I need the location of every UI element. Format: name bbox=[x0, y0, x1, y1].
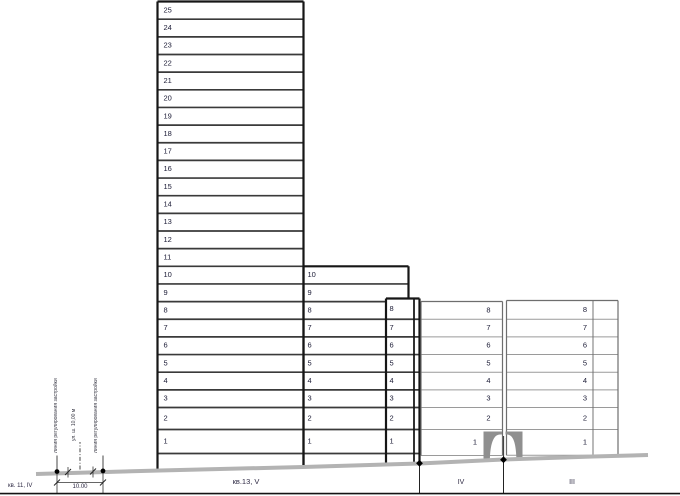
floor-label: 1 bbox=[164, 436, 168, 445]
floor-label: 3 bbox=[390, 394, 394, 403]
floor-label: 6 bbox=[390, 341, 394, 350]
block-label-kv11: кв. 11, IV bbox=[8, 483, 32, 489]
floor-label: 8 bbox=[390, 304, 394, 313]
floor-label: 2 bbox=[308, 413, 312, 422]
floor-label: 7 bbox=[308, 323, 312, 332]
floor-label: 18 bbox=[164, 129, 172, 138]
floor-label: 17 bbox=[164, 147, 172, 156]
floor-label: 4 bbox=[583, 376, 587, 385]
floor-label: 20 bbox=[164, 94, 172, 103]
floor-label: 15 bbox=[164, 182, 172, 191]
floor-label: 22 bbox=[164, 58, 172, 67]
drawing-canvas: 1234567891012345678910111213141516171819… bbox=[0, 0, 680, 496]
floor-label: 1 bbox=[308, 436, 312, 445]
floor-label: 25 bbox=[164, 5, 172, 14]
floor-label: 4 bbox=[486, 376, 490, 385]
floor-label: 21 bbox=[164, 76, 172, 85]
floor-label: 10 bbox=[308, 270, 316, 279]
floor-label: 3 bbox=[583, 394, 587, 403]
floor-label: 5 bbox=[486, 358, 490, 367]
building-building-8-storey-narrow: 12345678 bbox=[386, 299, 420, 466]
floor-label: 1 bbox=[473, 437, 477, 446]
floor-label: 1 bbox=[390, 436, 394, 445]
floor-label: 5 bbox=[308, 358, 312, 367]
dimension-value: 10.00 bbox=[60, 484, 100, 490]
floor-label: 7 bbox=[486, 323, 490, 332]
building-tower-25-storey: 1234567891011121314151617181920212223242… bbox=[158, 2, 304, 471]
floor-label: 19 bbox=[164, 111, 172, 120]
floor-label: 10 bbox=[164, 270, 172, 279]
floor-label: 1 bbox=[583, 437, 587, 446]
regulation-line-label-left: линия регулирования застройки bbox=[54, 378, 59, 453]
floor-label: 4 bbox=[308, 376, 312, 385]
floor-label: 11 bbox=[164, 252, 172, 261]
floor-label: 6 bbox=[164, 341, 168, 350]
floor-label: 24 bbox=[164, 23, 172, 32]
floor-label: 8 bbox=[164, 305, 168, 314]
elevation-drawing: 1234567891012345678910111213141516171819… bbox=[0, 0, 680, 496]
ground-line bbox=[36, 455, 648, 474]
floor-label: 5 bbox=[390, 358, 394, 367]
floor-label: 6 bbox=[308, 341, 312, 350]
floor-label: 6 bbox=[486, 341, 490, 350]
zone-label-iii: III bbox=[552, 479, 592, 486]
street-axis-label: ул. ш. 10,00 м bbox=[72, 409, 77, 441]
block-label-kv13: кв.13, V bbox=[215, 478, 277, 486]
floor-label: 5 bbox=[164, 358, 168, 367]
floor-label: 4 bbox=[390, 376, 394, 385]
floor-label: 16 bbox=[164, 164, 172, 173]
floor-label: 4 bbox=[164, 376, 168, 385]
floor-label: 2 bbox=[164, 413, 168, 422]
floor-label: 3 bbox=[308, 394, 312, 403]
floor-label: 3 bbox=[164, 394, 168, 403]
regulation-line-label-right: линия регулирования застройки bbox=[94, 378, 99, 453]
floor-label: 7 bbox=[164, 323, 168, 332]
floor-label: 3 bbox=[486, 394, 490, 403]
floor-label: 14 bbox=[164, 200, 172, 209]
floor-label: 8 bbox=[486, 305, 490, 314]
building-building-iii-8-storey: 12345678 bbox=[507, 301, 619, 456]
floor-label: 7 bbox=[583, 323, 587, 332]
floor-label: 12 bbox=[164, 235, 172, 244]
floor-label: 6 bbox=[583, 341, 587, 350]
floor-label: 13 bbox=[164, 217, 172, 226]
floor-label: 2 bbox=[486, 413, 490, 422]
floor-label: 2 bbox=[390, 413, 394, 422]
floor-label: 8 bbox=[583, 305, 587, 314]
floor-label: 9 bbox=[164, 288, 168, 297]
floor-label: 7 bbox=[390, 323, 394, 332]
floor-label: 9 bbox=[308, 288, 312, 297]
floor-label: 23 bbox=[164, 41, 172, 50]
floor-label: 5 bbox=[583, 358, 587, 367]
floor-label: 2 bbox=[583, 413, 587, 422]
zone-label-iv: IV bbox=[441, 479, 481, 486]
floor-label: 8 bbox=[308, 305, 312, 314]
